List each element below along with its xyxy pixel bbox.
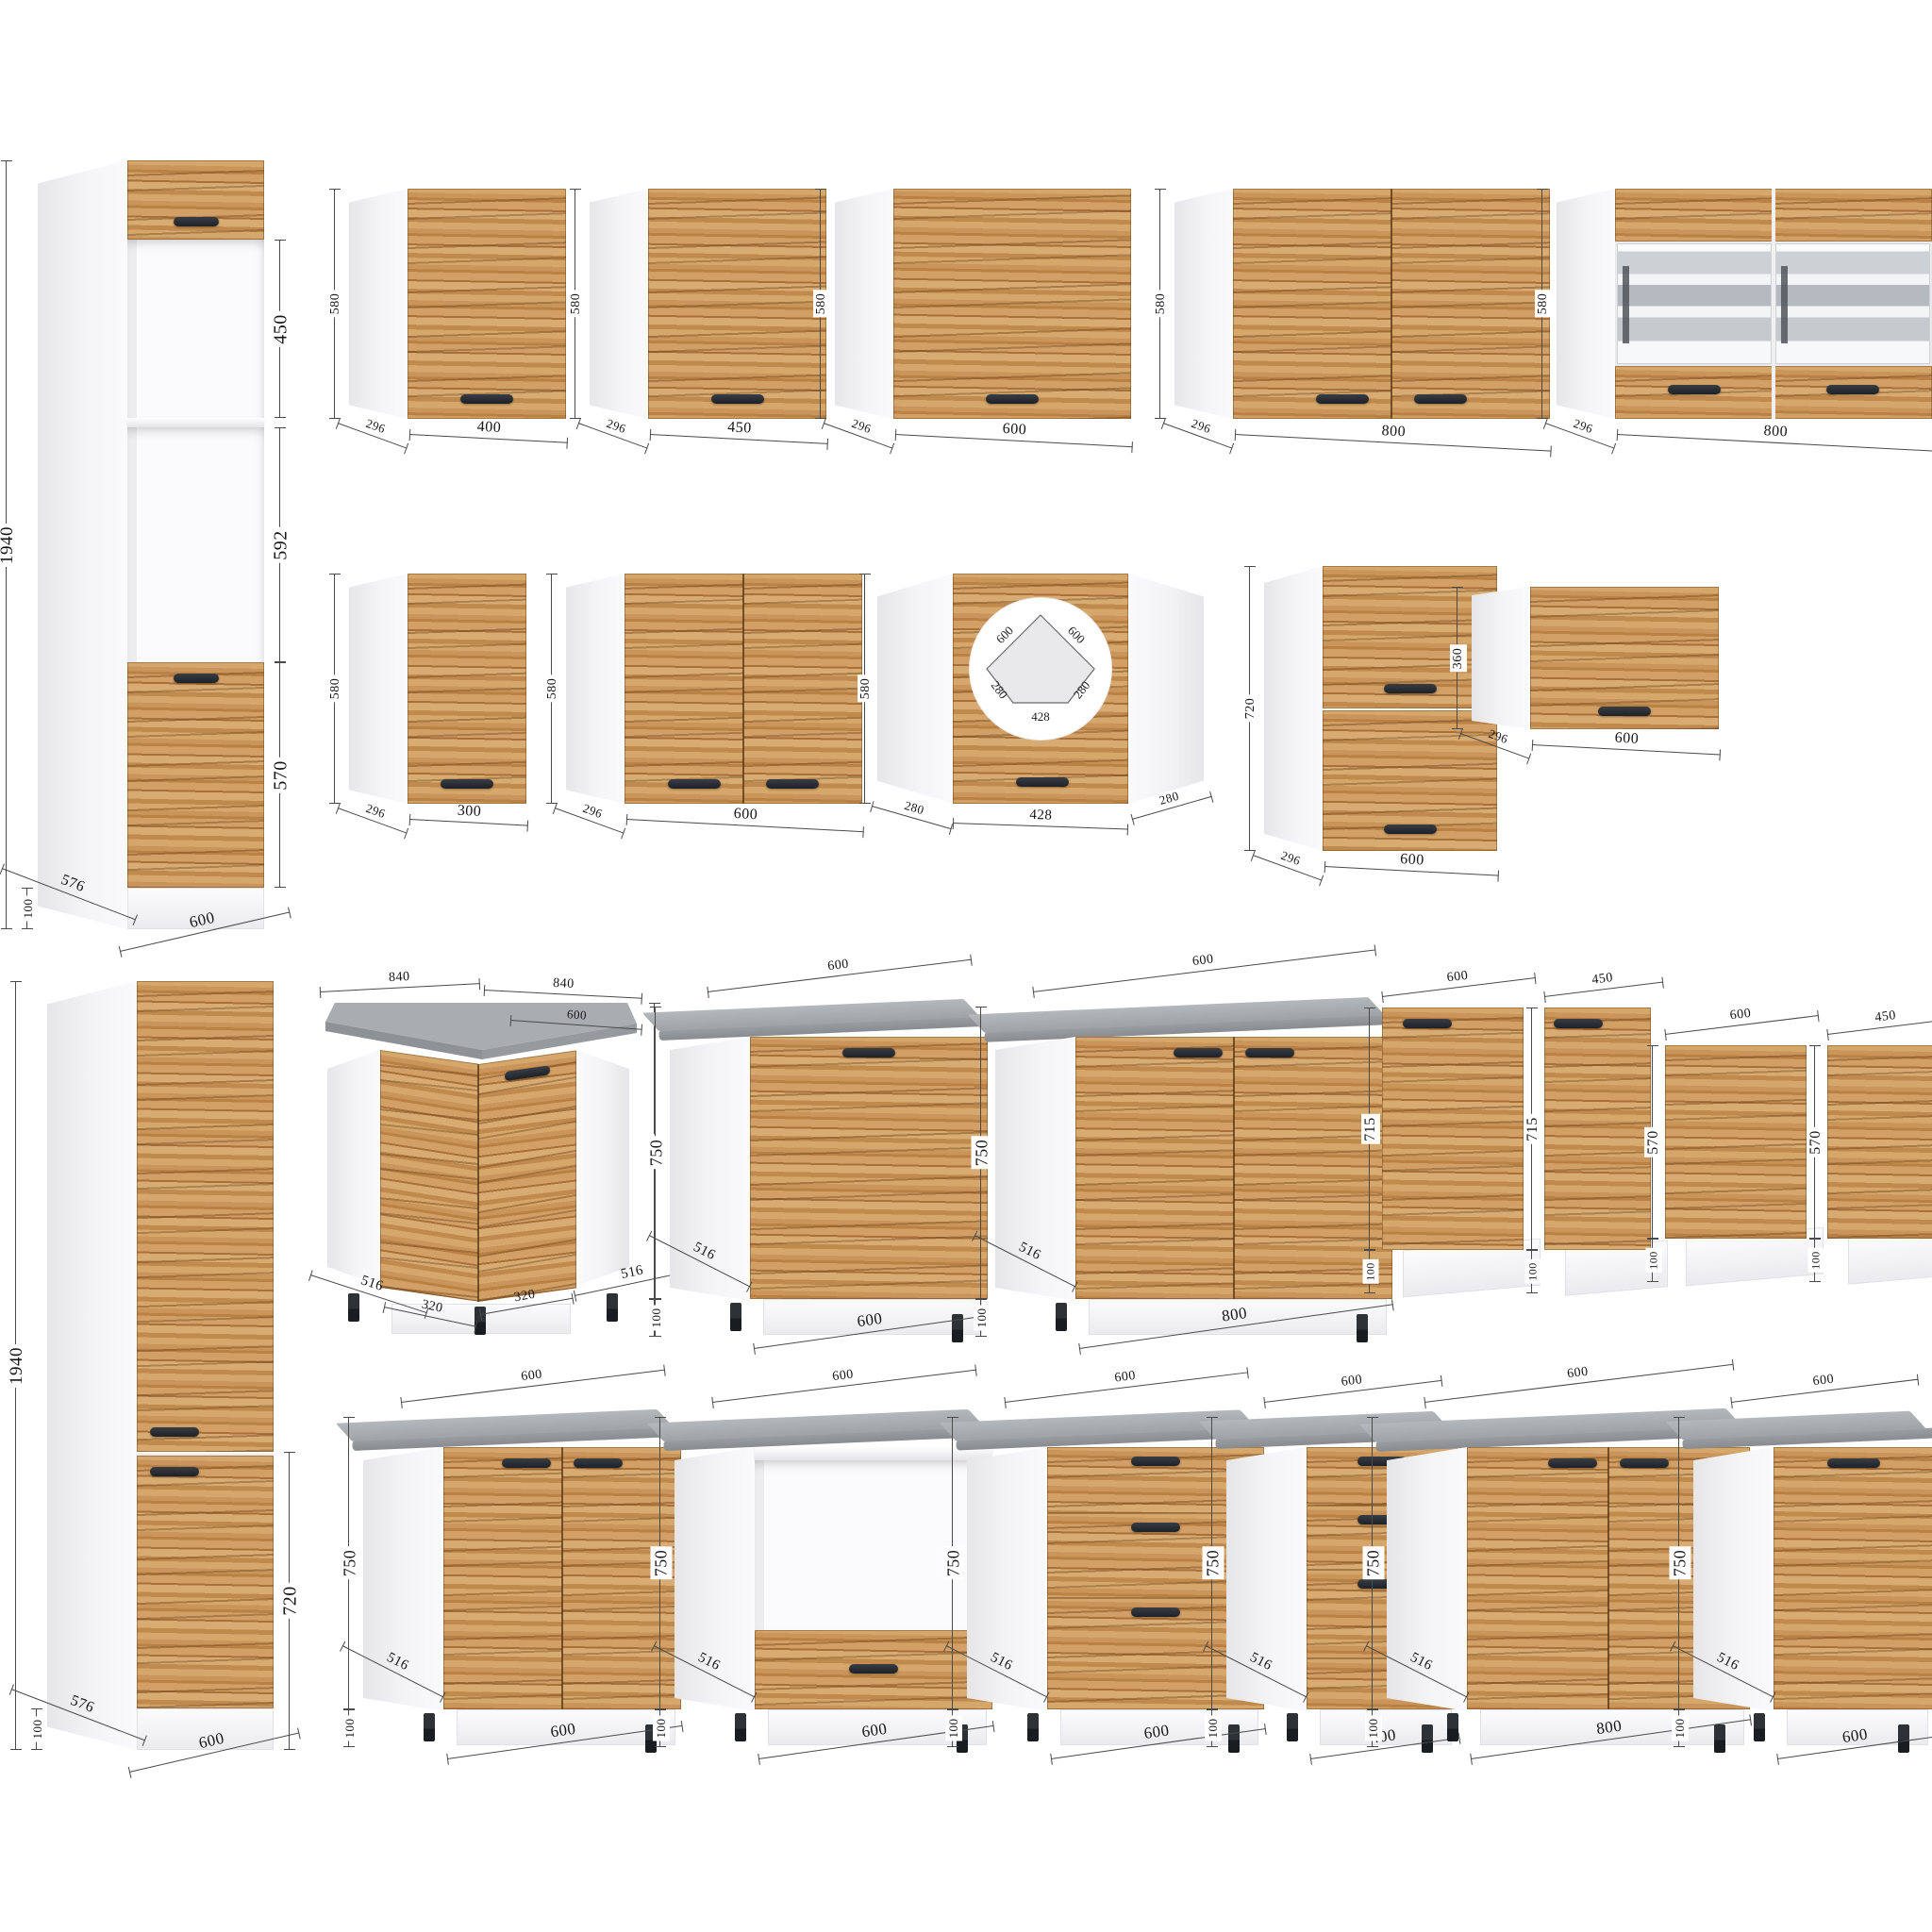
- dim-vertical: 1940: [15, 981, 16, 1750]
- dim-tick: [707, 986, 708, 997]
- dim-label: 570: [1807, 1127, 1825, 1158]
- dim-tick: [1, 928, 12, 929]
- glass-pane: [1615, 241, 1774, 366]
- dim-tick: [1251, 850, 1256, 861]
- wood-front: [1827, 1045, 1932, 1239]
- dim-tick: [1078, 1342, 1081, 1354]
- side-panel: [1128, 574, 1204, 804]
- dim-vertical: 750: [348, 1417, 349, 1709]
- wood-front: [137, 1456, 274, 1708]
- dim-label: 1940: [6, 1344, 28, 1388]
- dim-tick: [1732, 1358, 1734, 1370]
- dim-tick: [1, 160, 12, 161]
- door-handle: [1414, 394, 1467, 404]
- dim-label: 400: [476, 419, 501, 437]
- dim-horizontal: 800: [1235, 434, 1552, 452]
- dim-label: 600: [1729, 1007, 1752, 1024]
- dim-vertical: 100: [952, 1709, 953, 1747]
- dim-tick: [681, 1720, 684, 1731]
- dim-tick: [1441, 1374, 1442, 1386]
- wood-front: [1774, 366, 1932, 419]
- dim-tick: [626, 814, 628, 825]
- dim-horizontal: 428: [953, 823, 1128, 829]
- adjustable-leg: [735, 1713, 746, 1741]
- countertop: [658, 997, 1006, 1041]
- dim-horizontal: 296: [338, 808, 408, 834]
- dim-tick: [1776, 1753, 1779, 1764]
- dim-tick: [650, 429, 652, 441]
- carcass-divider: [1772, 189, 1775, 419]
- dim-vertical: 100: [1531, 1250, 1532, 1293]
- dim-horizontal: 600: [1665, 1015, 1819, 1035]
- dim-tick: [275, 240, 286, 241]
- open-niche: [127, 240, 264, 418]
- dim-vertical: 580: [334, 189, 335, 419]
- dim-vertical: 100: [348, 1709, 349, 1747]
- dim-horizontal: 296: [338, 423, 408, 449]
- dim-label: 580: [327, 675, 344, 703]
- dim-tick: [9, 1684, 14, 1695]
- dim-tick: [1381, 991, 1383, 1002]
- dim-tick: [1526, 1292, 1538, 1293]
- door-handle: [986, 394, 1039, 404]
- dim-tick: [1534, 973, 1536, 984]
- dim-tick: [1470, 1753, 1473, 1764]
- dim-label: 100: [20, 896, 37, 922]
- dim-tick: [947, 1709, 958, 1710]
- side-panel: [349, 189, 408, 419]
- wood-front: [380, 1050, 478, 1302]
- door-handle: [174, 674, 219, 683]
- dim-tick: [655, 1417, 666, 1418]
- door-seam: [1607, 1447, 1609, 1709]
- dim-horizontal: 600: [626, 819, 864, 832]
- door-handle: [1403, 1019, 1452, 1028]
- dim-label: 600: [856, 1309, 884, 1332]
- dim-tick: [1674, 1709, 1685, 1710]
- dim-label: 600: [1341, 1373, 1363, 1391]
- dim-label: 296: [364, 801, 388, 822]
- door-handle: [668, 779, 721, 789]
- door-handle: [1131, 1457, 1180, 1466]
- dim-vertical: 100: [659, 1709, 660, 1747]
- dim-label: 580: [568, 291, 585, 318]
- door-handle: [1668, 385, 1721, 394]
- dim-tick: [1826, 1028, 1828, 1040]
- dim-vertical: 750: [1372, 1417, 1373, 1709]
- dim-label: 715: [1524, 1114, 1542, 1144]
- dim-tick: [336, 418, 341, 429]
- dim-label: 600: [1400, 851, 1424, 869]
- dim-vertical: 570: [1652, 1045, 1653, 1239]
- dim-horizontal: 600: [1324, 866, 1499, 876]
- door-handle: [1384, 684, 1437, 693]
- dim-tick: [1532, 740, 1534, 751]
- dim-tick: [1127, 824, 1128, 835]
- dim-vertical: 580: [820, 189, 821, 419]
- dim-horizontal: 600: [708, 959, 972, 992]
- dim-tick: [1611, 442, 1616, 454]
- dim-label: 600: [549, 1720, 577, 1742]
- dim-tick: [859, 574, 871, 575]
- dim-tick: [650, 1007, 661, 1008]
- dim-label: 580: [544, 675, 561, 703]
- wood-front: [1467, 1447, 1608, 1709]
- dim-vertical: 100: [36, 1708, 37, 1750]
- dim-label: 715: [1361, 1114, 1380, 1144]
- dim-tick: [275, 887, 286, 888]
- door-handle: [460, 394, 513, 404]
- side-panel: [1264, 566, 1323, 851]
- wood-front: [137, 981, 274, 1452]
- dim-tick: [1719, 749, 1721, 760]
- dim-tick: [1235, 429, 1237, 441]
- dim-vertical: 580: [551, 574, 552, 804]
- dim-label: 600: [827, 958, 850, 975]
- countertop: [984, 995, 1410, 1042]
- dim-vertical: 450: [279, 240, 280, 418]
- dim-tick: [527, 820, 529, 831]
- dim-tick: [1617, 429, 1619, 441]
- dim-horizontal: 300: [409, 819, 528, 826]
- dim-vertical: 580: [575, 189, 575, 419]
- dim-horizontal: 600: [1033, 949, 1375, 992]
- wood-front: [743, 574, 862, 804]
- side-panel: [576, 1050, 629, 1286]
- dim-tick: [1244, 566, 1256, 567]
- dim-tick: [621, 827, 625, 839]
- dim-label: 800: [1381, 423, 1406, 441]
- dim-label: 100: [29, 1717, 46, 1742]
- dim-label: 600: [1566, 1365, 1589, 1383]
- dim-tick: [975, 1299, 987, 1300]
- door-seam: [1391, 189, 1392, 419]
- dim-label: 800: [1221, 1304, 1249, 1326]
- adjustable-leg: [1447, 1713, 1458, 1741]
- dim-tick: [1917, 1374, 1919, 1385]
- dim-tick: [1364, 1250, 1375, 1251]
- shelf: [127, 418, 264, 427]
- dim-tick: [890, 442, 894, 454]
- corner-countertop: [325, 995, 637, 1061]
- dim-tick: [1161, 418, 1166, 429]
- dim-tick: [1647, 1045, 1658, 1046]
- dim-tick: [288, 907, 291, 918]
- door-handle: [1016, 777, 1069, 787]
- door-handle: [1548, 1458, 1597, 1468]
- dim-tick: [1664, 1028, 1666, 1040]
- dim-label: 100: [1365, 1716, 1382, 1741]
- dim-tick: [947, 1417, 958, 1418]
- dim-tick: [275, 417, 286, 418]
- dim-tick: [1543, 418, 1548, 429]
- plan-dim-label: 428: [1031, 709, 1050, 724]
- dim-vertical: 720: [1249, 566, 1250, 851]
- dim-tick: [308, 1270, 313, 1281]
- dim-label: 580: [1153, 291, 1170, 318]
- plan-inset-circle: 600600280280428: [970, 598, 1111, 740]
- dim-tick: [711, 1396, 713, 1407]
- dim-tick: [1526, 753, 1531, 764]
- dim-horizontal: 600: [895, 434, 1133, 447]
- dim-label: 592: [270, 527, 293, 563]
- dim-tick: [1264, 1724, 1267, 1735]
- dim-vertical: 570: [279, 662, 280, 888]
- dim-tick: [478, 978, 480, 990]
- glass-shelf-support: [1781, 266, 1788, 343]
- open-niche: [127, 427, 264, 662]
- dim-label: 840: [389, 970, 410, 986]
- dim-tick: [815, 189, 826, 190]
- dim-vertical: 715: [1369, 1008, 1370, 1250]
- dim-tick: [992, 1720, 995, 1731]
- dim-label: 800: [1595, 1716, 1624, 1739]
- dim-label: 720: [1242, 695, 1259, 723]
- dim-label: 296: [1487, 726, 1510, 747]
- adjustable-leg: [1898, 1724, 1909, 1753]
- dim-tick: [275, 662, 286, 663]
- dim-vertical: 100: [1652, 1239, 1653, 1282]
- dim-tick: [862, 826, 864, 838]
- dim-tick: [644, 442, 649, 454]
- dim-tick: [570, 189, 581, 190]
- side-panel: [566, 574, 625, 804]
- dim-tick: [663, 1364, 665, 1375]
- dim-vertical: 750: [1211, 1417, 1212, 1709]
- dim-tick: [655, 1709, 666, 1710]
- glass-shelf-support: [1623, 266, 1629, 343]
- dim-tick: [975, 1007, 987, 1008]
- dim-tick: [10, 981, 22, 982]
- door-handle: [1174, 1048, 1223, 1058]
- dim-tick: [284, 1749, 295, 1750]
- door-handle: [574, 1458, 623, 1468]
- dim-label: 100: [341, 1716, 358, 1741]
- dim-vertical: 750: [952, 1417, 953, 1709]
- dim-horizontal: 296: [1163, 423, 1233, 449]
- dim-horizontal: 840: [320, 983, 480, 992]
- dim-label: 750: [1363, 1547, 1385, 1580]
- dim-tick: [947, 1746, 958, 1747]
- wood-front: [1774, 189, 1932, 241]
- dim-label: 600: [860, 1720, 889, 1742]
- adjustable-leg: [424, 1713, 435, 1741]
- door-handle: [150, 1427, 199, 1437]
- dim-tick: [0, 863, 5, 874]
- side-panel: [38, 160, 127, 929]
- dim-horizontal: 450: [650, 434, 828, 444]
- door-handle: [1384, 824, 1437, 834]
- door-handle: [1827, 1458, 1880, 1468]
- dim-tick: [650, 1299, 661, 1300]
- dim-label: 720: [279, 1583, 303, 1619]
- dim-label: 100: [1525, 1259, 1541, 1284]
- door-handle: [1620, 1458, 1669, 1468]
- dim-label: 428: [1029, 808, 1053, 824]
- door-handle: [842, 1048, 895, 1058]
- dim-label: 1940: [0, 524, 19, 567]
- dim-tick: [576, 418, 581, 429]
- wood-front: [1530, 587, 1719, 729]
- dim-vertical: 100: [1814, 1239, 1815, 1282]
- dim-vertical: 580: [864, 574, 865, 804]
- dim-tick: [446, 1753, 449, 1764]
- door-seam: [1233, 1037, 1235, 1299]
- dim-tick: [822, 418, 826, 429]
- dim-label: 450: [727, 419, 752, 437]
- dim-horizontal: 800: [1617, 434, 1932, 452]
- wood-front: [1615, 189, 1774, 241]
- dim-tick: [31, 1708, 42, 1709]
- wood-front: [755, 1630, 992, 1709]
- side-panel: [835, 189, 893, 419]
- dim-label: 600: [567, 1007, 588, 1023]
- dim-vertical: 592: [279, 427, 280, 662]
- dim-tick: [1032, 986, 1034, 997]
- dim-horizontal: 600: [1264, 1380, 1442, 1403]
- dim-tick: [970, 954, 972, 965]
- dim-tick: [1263, 1396, 1265, 1407]
- dim-tick: [1364, 1008, 1375, 1008]
- dim-label: 840: [553, 976, 575, 992]
- dim-tick: [646, 1230, 652, 1241]
- door-handle: [1316, 394, 1369, 404]
- dim-label: 600: [521, 1368, 543, 1386]
- dim-tick: [1526, 1250, 1538, 1251]
- dim-tick: [275, 427, 286, 428]
- dim-label: 296: [850, 416, 874, 437]
- dim-label: 296: [605, 416, 628, 437]
- dim-tick: [404, 442, 408, 454]
- dim-tick: [1452, 587, 1463, 588]
- dim-label: 100: [1808, 1248, 1824, 1273]
- door-handle: [150, 1467, 199, 1476]
- dim-label: 600: [1114, 1369, 1137, 1387]
- door-handle: [1131, 1607, 1180, 1617]
- side-panel: [877, 574, 953, 804]
- dim-label: 600: [1841, 1725, 1870, 1748]
- dim-tick: [1526, 1008, 1538, 1008]
- dim-label: 750: [1670, 1547, 1691, 1580]
- dim-tick: [574, 1290, 576, 1301]
- adjustable-leg: [1287, 1713, 1298, 1741]
- wood-front: [1075, 1037, 1234, 1299]
- wood-front: [478, 1050, 576, 1302]
- dim-tick: [1674, 1417, 1685, 1418]
- dim-label: 296: [1190, 416, 1213, 437]
- dim-label: 600: [832, 1368, 855, 1386]
- dim-tick: [546, 574, 558, 575]
- dim-label: 296: [581, 801, 605, 822]
- dim-label: 800: [1763, 423, 1788, 441]
- dim-label: 600: [1812, 1373, 1835, 1391]
- adjustable-leg: [1228, 1724, 1240, 1753]
- dim-tick: [650, 1336, 661, 1337]
- wood-front: [1665, 1045, 1807, 1239]
- adjustable-leg: [607, 1293, 618, 1322]
- dim-tick: [1543, 991, 1545, 1002]
- wood-front: [1323, 566, 1497, 708]
- dim-label: 600: [1614, 730, 1639, 748]
- dim-tick: [1367, 1746, 1378, 1747]
- dim-tick: [1809, 1045, 1821, 1046]
- dim-label: 280: [903, 798, 926, 818]
- door-handle: [502, 1458, 551, 1468]
- dim-tick: [1817, 1010, 1819, 1022]
- dim-vertical: 100: [1369, 1250, 1370, 1293]
- wood-front: [1774, 1447, 1932, 1709]
- dim-tick: [383, 1302, 386, 1313]
- dim-tick: [340, 1641, 345, 1651]
- dim-tick: [974, 1364, 976, 1375]
- wood-front: [1382, 1008, 1524, 1250]
- side-panel: [590, 189, 648, 419]
- dim-tick: [826, 438, 828, 449]
- wood-front: [1233, 189, 1391, 419]
- side-panel: [327, 1050, 380, 1286]
- adjustable-leg: [1754, 1713, 1765, 1741]
- dim-tick: [1537, 189, 1548, 190]
- dim-label: 750: [972, 1137, 993, 1170]
- dim-label: 100: [1646, 1248, 1662, 1273]
- adjustable-leg: [348, 1293, 359, 1322]
- dim-tick: [641, 992, 642, 1004]
- dim-tick: [1647, 1281, 1658, 1282]
- dim-vertical: 580: [1159, 189, 1160, 419]
- dim-horizontal: 296: [1253, 855, 1323, 881]
- dim-label: 100: [1363, 1259, 1379, 1284]
- dim-tick: [1809, 1239, 1821, 1240]
- dim-horizontal: 600: [1731, 1379, 1919, 1403]
- dim-tick: [343, 1709, 355, 1710]
- side-panel: [349, 574, 408, 804]
- dim-vertical: 1940: [6, 160, 7, 929]
- dim-vertical: 750: [655, 1007, 656, 1299]
- dim-vertical: 100: [980, 1299, 981, 1337]
- dim-tick: [119, 945, 123, 957]
- door-handle: [1131, 1523, 1180, 1532]
- wood-front: [625, 574, 743, 804]
- dim-tick: [336, 803, 341, 814]
- dim-label: 580: [1535, 291, 1552, 318]
- dim-tick: [649, 1003, 660, 1004]
- dim-tick: [859, 803, 871, 804]
- dim-tick: [1661, 976, 1663, 988]
- dim-tick: [1209, 791, 1213, 802]
- wood-front: [127, 662, 264, 888]
- dim-label: 100: [653, 1716, 670, 1741]
- dim-horizontal: 280: [1132, 796, 1212, 820]
- dim-tick: [1131, 441, 1133, 453]
- dim-tick: [1374, 944, 1376, 956]
- dim-tick: [1207, 1709, 1218, 1710]
- dim-tick: [128, 1766, 132, 1777]
- dim-tick: [1424, 1396, 1425, 1407]
- adjustable-leg: [1027, 1713, 1039, 1741]
- corner-plan-diagram: 600600280280428: [970, 598, 1111, 740]
- dim-label: 100: [1672, 1716, 1689, 1741]
- dim-tick: [409, 814, 411, 825]
- dim-horizontal: 450: [1544, 982, 1663, 997]
- dim-label: 296: [1572, 416, 1595, 437]
- dim-horizontal: 600: [401, 1370, 665, 1403]
- wood-front: [1391, 189, 1550, 419]
- dim-tick: [1309, 1753, 1312, 1764]
- dim-vertical: 580: [1541, 189, 1542, 419]
- dim-label: 100: [945, 1716, 962, 1741]
- dim-label: 580: [327, 291, 344, 318]
- dim-horizontal: 296: [1545, 423, 1615, 449]
